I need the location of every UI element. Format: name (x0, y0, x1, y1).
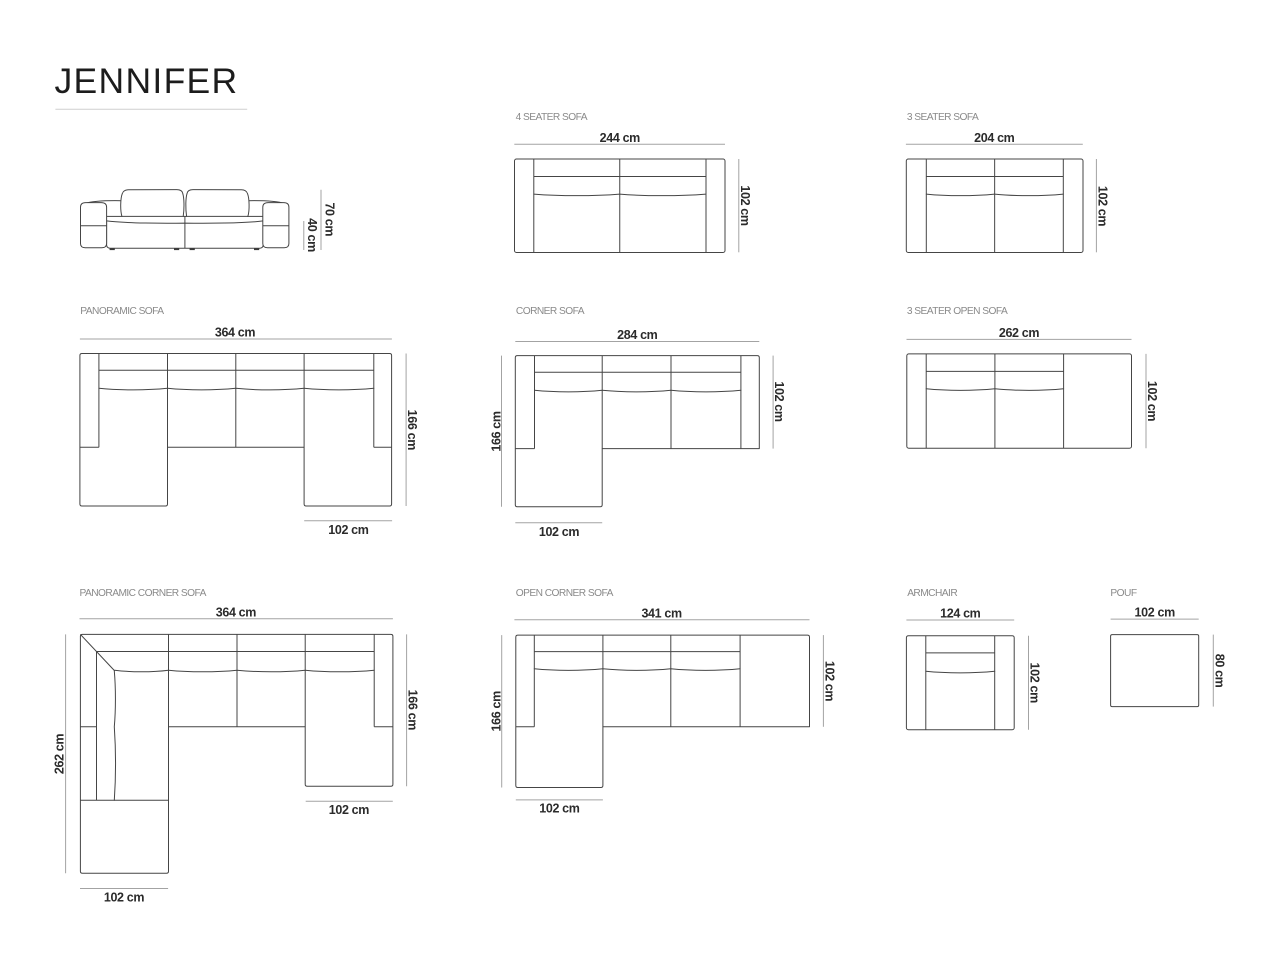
svg-text:341 cm: 341 cm (641, 606, 682, 620)
svg-text:POUF: POUF (1110, 588, 1136, 599)
svg-text:4 SEATER SOFA: 4 SEATER SOFA (516, 112, 588, 123)
svg-text:364 cm: 364 cm (215, 326, 256, 340)
svg-text:166 cm: 166 cm (406, 690, 420, 731)
svg-text:204 cm: 204 cm (974, 131, 1015, 145)
svg-text:102 cm: 102 cm (823, 661, 837, 702)
svg-text:CORNER SOFA: CORNER SOFA (516, 306, 585, 317)
svg-text:166 cm: 166 cm (489, 411, 503, 452)
svg-text:262 cm: 262 cm (53, 734, 67, 775)
svg-text:OPEN CORNER SOFA: OPEN CORNER SOFA (516, 588, 614, 599)
svg-text:364 cm: 364 cm (216, 605, 257, 619)
svg-text:102 cm: 102 cm (328, 523, 369, 537)
svg-text:40 cm: 40 cm (305, 218, 319, 252)
svg-text:102 cm: 102 cm (1096, 186, 1110, 227)
svg-text:102 cm: 102 cm (1145, 381, 1159, 422)
svg-text:102 cm: 102 cm (539, 801, 580, 815)
svg-text:166 cm: 166 cm (490, 691, 504, 732)
svg-text:102 cm: 102 cm (1028, 663, 1042, 704)
svg-text:102 cm: 102 cm (329, 803, 370, 817)
svg-text:80 cm: 80 cm (1212, 654, 1226, 688)
svg-text:102 cm: 102 cm (772, 381, 786, 422)
svg-text:JENNIFER: JENNIFER (55, 61, 239, 101)
svg-text:102 cm: 102 cm (738, 185, 752, 226)
svg-text:166 cm: 166 cm (405, 410, 419, 451)
svg-text:3 SEATER SOFA: 3 SEATER SOFA (907, 112, 979, 123)
svg-text:244 cm: 244 cm (600, 131, 641, 145)
svg-text:284 cm: 284 cm (617, 328, 658, 342)
svg-text:124 cm: 124 cm (940, 607, 981, 621)
svg-text:102 cm: 102 cm (539, 525, 580, 539)
svg-text:PANORAMIC SOFA: PANORAMIC SOFA (80, 306, 164, 317)
svg-text:70 cm: 70 cm (322, 202, 336, 236)
svg-text:3 SEATER OPEN SOFA: 3 SEATER OPEN SOFA (907, 306, 1008, 317)
svg-text:262 cm: 262 cm (999, 326, 1040, 340)
svg-text:102 cm: 102 cm (1135, 606, 1176, 620)
svg-text:PANORAMIC CORNER SOFA: PANORAMIC CORNER SOFA (80, 588, 207, 599)
svg-text:102 cm: 102 cm (104, 891, 145, 905)
svg-text:ARMCHAIR: ARMCHAIR (907, 588, 957, 599)
